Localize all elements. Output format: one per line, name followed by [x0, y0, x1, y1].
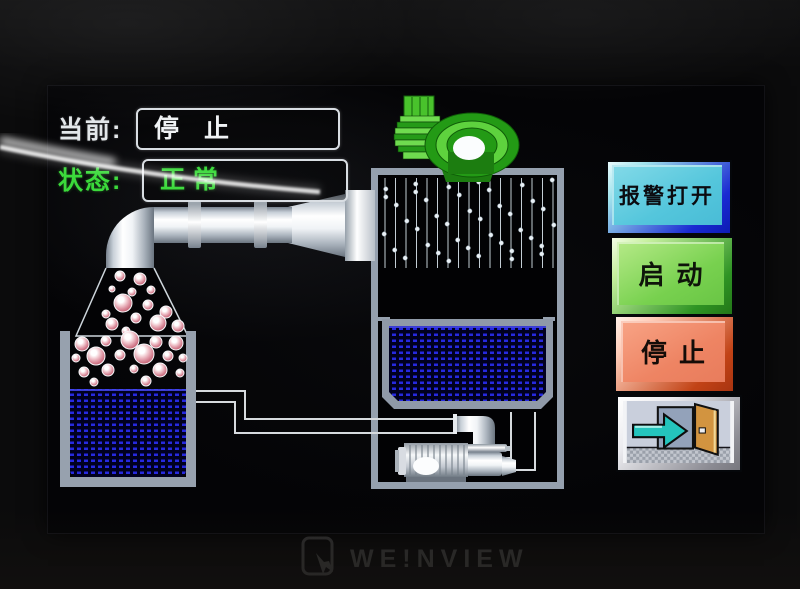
brand-logo: WE!NVIEW: [300, 536, 529, 582]
start-button[interactable]: 启动: [612, 238, 732, 314]
stop-button-label: 停止: [621, 321, 725, 382]
hmi-screen: 当前: 停 止 状态: 正常 报警打开 启动 停止: [48, 86, 764, 533]
status-value-box: 正常: [142, 159, 348, 202]
alarm-open-button[interactable]: 报警打开: [608, 162, 730, 233]
brand-text: WE!NVIEW: [350, 545, 529, 574]
stop-button[interactable]: 停止: [616, 317, 733, 391]
status-label: 状态:: [58, 161, 122, 197]
foam-tank: [60, 331, 196, 487]
hmi-device: 当前: 停 止 状态: 正常 报警打开 启动 停止: [0, 0, 800, 589]
exit-button[interactable]: [618, 397, 740, 470]
status-value: 正常: [160, 161, 346, 199]
exit-door-arrow-icon: [623, 401, 734, 463]
current-value-box: 停 止: [136, 108, 340, 150]
current-value: 停 止: [154, 110, 338, 148]
alarm-open-button-label: 报警打开: [612, 165, 722, 225]
liquid-basin: [378, 317, 555, 409]
current-label: 当前:: [58, 110, 122, 146]
start-button-label: 启动: [617, 242, 724, 305]
touch-hand-icon: [300, 536, 338, 582]
